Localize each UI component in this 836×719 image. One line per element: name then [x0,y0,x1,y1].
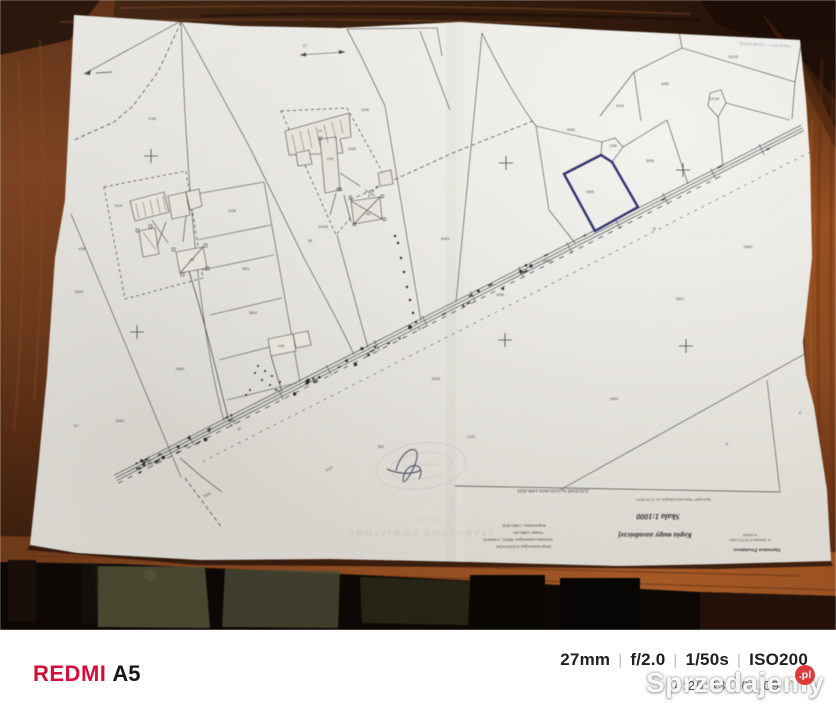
svg-text:57: 57 [74,423,79,428]
svg-text:Starostwo Powiatowe: Starostwo Powiatowe [733,547,781,553]
svg-text:2864: 2864 [176,366,186,371]
svg-text:6/58: 6/58 [646,158,655,163]
svg-text:16/18: 16/18 [728,54,739,59]
svg-text:3064: 3064 [116,418,126,423]
svg-text:10/98: 10/98 [318,224,329,229]
svg-text:2/98: 2/98 [228,208,237,213]
svg-text:2/98: 2/98 [361,107,370,112]
svg-text:19: 19 [318,128,323,133]
svg-text:2862: 2862 [610,396,620,401]
svg-text:6/18: 6/18 [616,103,625,108]
svg-text:Kopia mapy zasadniczej: Kopia mapy zasadniczej [617,531,693,540]
svg-text:2860: 2860 [744,244,754,249]
svg-text:4a: 4a [366,211,371,216]
svg-text:1/98: 1/98 [148,116,157,121]
svg-text:Sporządził / Wykonawca Biegusi: Sporządził / Wykonawca Biegusi, dn. 07.0… [635,498,711,502]
svg-text:46: 46 [190,257,195,262]
svg-text:w Lublinie: w Lublinie [743,533,757,537]
svg-text:8/58: 8/58 [661,81,670,86]
svg-text:2861: 2861 [676,296,686,301]
svg-text:Województwo: LUBELSKIE: Województwo: LUBELSKIE [502,524,546,528]
svg-text:58: 58 [308,238,313,243]
svg-text:5/58: 5/58 [567,127,576,132]
svg-text:2863: 2863 [543,258,553,263]
svg-text:14a: 14a [278,343,285,348]
svg-text:STAROSTWO POWIATOWE: STAROSTWO POWIATOWE [346,528,495,538]
svg-text:ul. Spokojna 9, 20-074 Lublin: ul. Spokojna 9, 20-074 Lublin [729,538,771,542]
svg-text:5/58: 5/58 [586,189,595,194]
svg-text:12/18: 12/18 [709,96,720,101]
svg-text:58/1: 58/1 [242,266,251,271]
svg-text:4/98: 4/98 [78,246,87,251]
svg-text:3062: 3062 [432,376,442,381]
svg-text:20β: 20β [378,445,384,449]
svg-text:3/98: 3/98 [348,146,357,151]
svg-text:12/6: 12/6 [467,434,476,439]
svg-text:7000: 7000 [114,203,124,208]
svg-text:3065: 3065 [75,289,85,294]
svg-text:ZLECENIE Nr GGN.6642.1488.2023: ZLECENIE Nr GGN.6642.1488.2023 [517,489,589,494]
svg-text:19a: 19a [327,156,334,161]
svg-text:4/58: 4/58 [496,292,505,297]
svg-text:Powiat: LUBELSKI: Powiat: LUBELSKI [513,531,543,535]
svg-text:W LUBLINIE: W LUBLINIE [408,516,451,522]
svg-text:58/3: 58/3 [249,310,258,315]
svg-text:1/58: 1/58 [609,143,618,148]
svg-text:3063: 3063 [441,236,451,241]
svg-text:Skala 1:1000: Skala 1:1000 [636,512,679,521]
svg-text:Obręb ewidencyjny: 8 DZIUCHÓW: Obręb ewidencyjny: 8 DZIUCHÓW [496,545,552,550]
svg-text:17: 17 [303,43,308,48]
